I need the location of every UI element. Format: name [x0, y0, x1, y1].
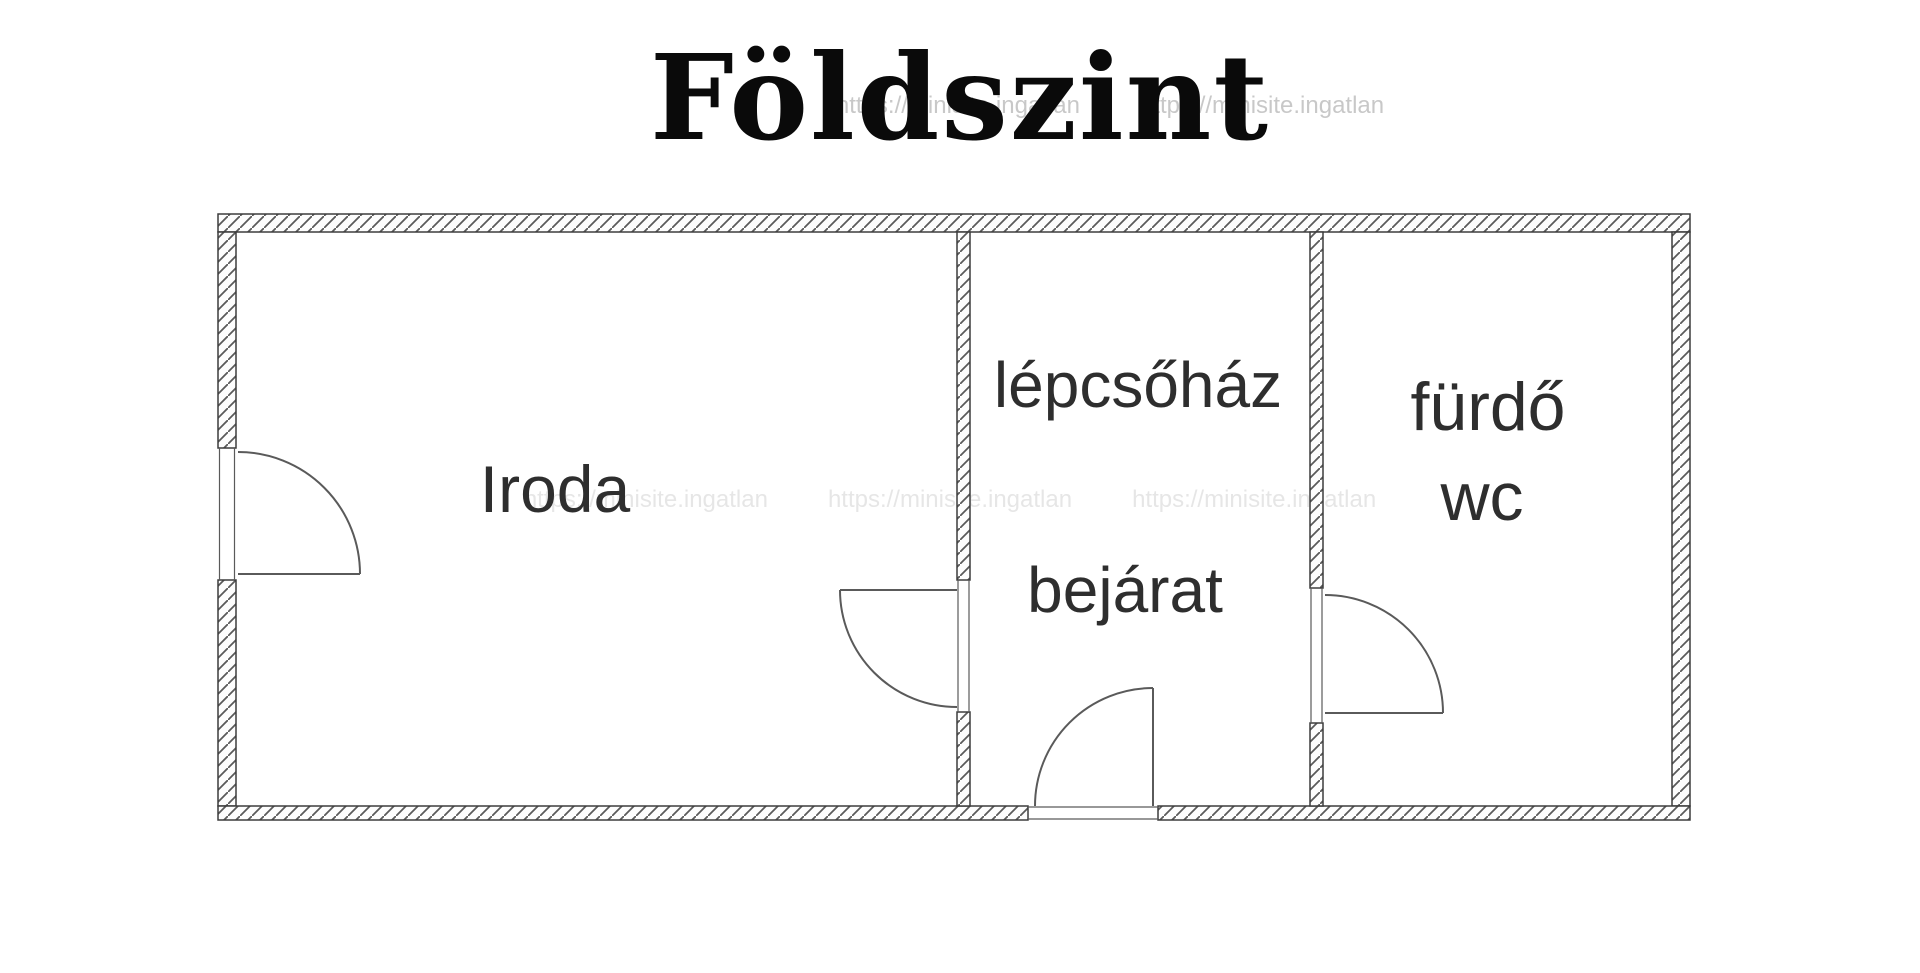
wall-interior-left-upper [957, 232, 970, 580]
wall-left-upper [218, 232, 236, 448]
room-label-wc: wc [1439, 459, 1523, 535]
door-arc-bathroom [1325, 595, 1443, 713]
wall-bottom-left [218, 806, 1028, 820]
floor-plan-page: { "title": "Földszint", "watermark": { "… [0, 0, 1920, 973]
wall-interior-right-upper [1310, 232, 1323, 588]
room-label-iroda: Iroda [480, 452, 631, 526]
wall-right [1672, 232, 1690, 806]
room-label-bejarat: bejárat [1027, 554, 1223, 626]
door-arc-entrance [1035, 688, 1153, 806]
wall-top [218, 214, 1690, 232]
wall-left-lower [218, 580, 236, 806]
page-title: Földszint [0, 28, 1920, 167]
wall-interior-left-lower [957, 712, 970, 806]
wall-bottom-right [1158, 806, 1690, 820]
wall-interior-right-lower [1310, 723, 1323, 806]
door-arc-iroda-stairwell [840, 590, 957, 707]
room-label-lepcsohaz: lépcsőház [994, 349, 1282, 421]
room-label-furdo: fürdő [1411, 369, 1566, 445]
door-arc-iroda-exterior [238, 452, 360, 574]
